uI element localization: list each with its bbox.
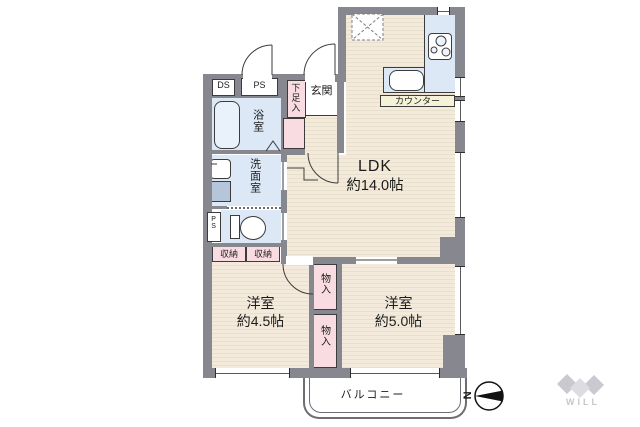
wall-segment: [313, 257, 356, 264]
wall-segment: [290, 368, 350, 378]
window: [215, 368, 290, 378]
toilet-bowl: [240, 216, 266, 240]
duct-ps-label: PS: [241, 80, 278, 90]
wall-segment: [203, 368, 215, 378]
compass-north-label: N: [460, 391, 473, 399]
wall-segment: [337, 257, 342, 368]
window: [455, 77, 465, 97]
wall-segment: [212, 150, 281, 154]
room2-name-label: 洋室: [345, 295, 452, 311]
bathroom-label: 浴室: [251, 109, 264, 133]
wall-segment: [203, 243, 281, 247]
counter-label: カウンター: [380, 96, 455, 106]
toilet-door-opening: [281, 213, 287, 240]
wall-segment: [281, 149, 305, 155]
closet1-label: 収納: [212, 249, 246, 259]
toilet-tank: [230, 215, 240, 239]
washer-space: [210, 181, 231, 202]
window: [455, 152, 465, 218]
wall-segment: [337, 82, 344, 153]
entrance-label: 玄関: [306, 85, 337, 98]
shoe-cabinet-label: 下足入: [290, 83, 300, 113]
duct-ds-label: DS: [212, 80, 235, 90]
will-logo-icon: [557, 374, 604, 398]
wall-segment: [338, 7, 346, 82]
floor-plan: DS PS 下足入 玄関 浴室 洗面室 PS 収納 収納 LDK 約14.0帖 …: [0, 0, 640, 427]
wall-corner-block: [443, 335, 465, 378]
bathtub: [214, 101, 240, 149]
toilet-ps-label: PS: [209, 216, 217, 230]
room1-size-label: 約4.5帖: [212, 313, 309, 329]
wall-segment: [212, 206, 227, 209]
exterior-door-arc: [242, 45, 272, 75]
room1-door-opening: [286, 256, 313, 265]
washbasin: [210, 159, 231, 179]
entrance-door-opening: [305, 74, 335, 82]
entrance-door-arc: [304, 44, 335, 75]
wall-notch: [440, 237, 465, 264]
storage2-label: 物入: [318, 325, 330, 347]
ldk-name-label: LDK: [325, 158, 425, 176]
room1-name-label: 洋室: [212, 295, 309, 311]
hall-storage-box: [283, 118, 305, 149]
window: [455, 100, 465, 122]
storage1-label: 物入: [318, 273, 330, 295]
window: [437, 7, 450, 15]
window: [350, 368, 440, 378]
wall-segment: [338, 7, 437, 15]
wall-segment: [397, 257, 443, 264]
room2-size-label: 約5.0帖: [345, 313, 452, 329]
logo-text: WILL: [562, 397, 604, 407]
compass-icon: [475, 382, 503, 410]
closet2-label: 収納: [246, 249, 280, 259]
balcony-label: バルコニー: [318, 389, 428, 402]
washroom-door-opening: [281, 162, 287, 190]
window: [455, 266, 465, 335]
kitchen-sink: [389, 70, 424, 91]
wall-segment: [313, 310, 337, 314]
stove: [428, 33, 452, 60]
room2-sliding-door: [356, 257, 397, 264]
washroom-label: 洗面室: [248, 158, 261, 194]
ldk-size-label: 約14.0帖: [325, 178, 425, 195]
